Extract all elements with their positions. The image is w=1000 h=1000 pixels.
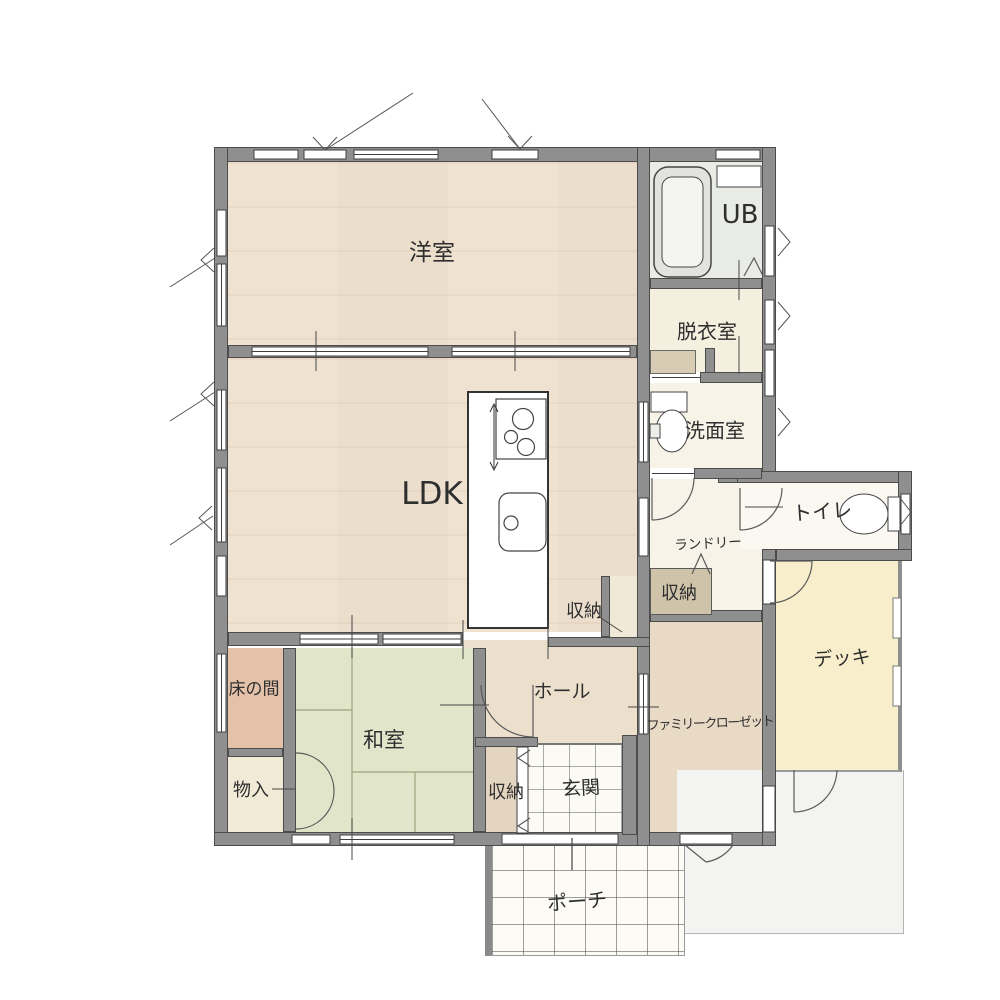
kitchen-island [468,392,548,628]
gas-stove-icon [496,399,546,459]
kitchen-sink-icon [499,493,546,551]
floor-plan: 洋室 UB 脱衣室 LDK 洗面室 トイレ ランドリー 収納 収納 床の間 和室… [0,0,1000,1000]
label-deck: デッキ [813,642,871,672]
label-genkan: 玄関 [561,773,600,802]
label-storage-genkan: 収納 [488,778,524,804]
label-washitsu: 和室 [363,724,405,754]
label-unit-bath: UB [722,200,759,230]
label-washroom: 洗面室 [685,415,745,444]
label-toilet: トイレ [791,493,853,526]
label-ldk: LDK [401,476,462,512]
label-tokonoma: 床の間 [229,675,280,700]
label-porch: ポーチ [546,883,608,916]
washbasin-icon [650,392,688,452]
label-laundry: ランドリー [674,530,742,554]
label-western-room: 洋室 [409,233,455,267]
label-storage-ldk: 収納 [566,597,602,623]
label-monoire: 物入 [233,776,269,802]
label-dressing-room: 脱衣室 [677,316,737,345]
label-storage-laundry: 収納 [661,579,697,605]
label-hall: ホール [533,677,590,704]
